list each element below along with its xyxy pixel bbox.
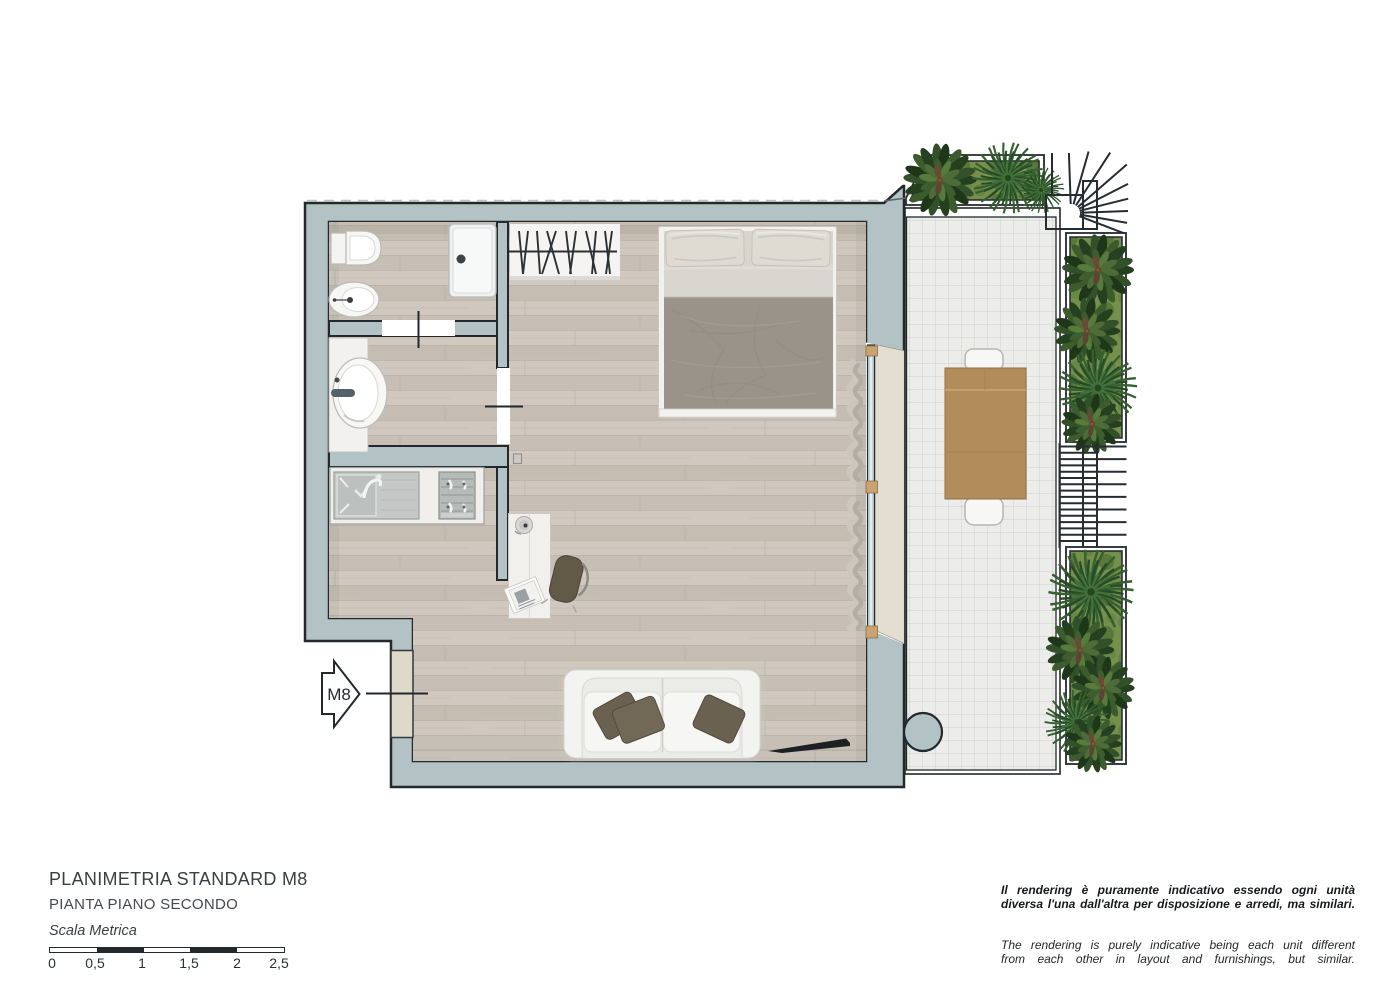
svg-text:M8: M8	[327, 685, 351, 704]
